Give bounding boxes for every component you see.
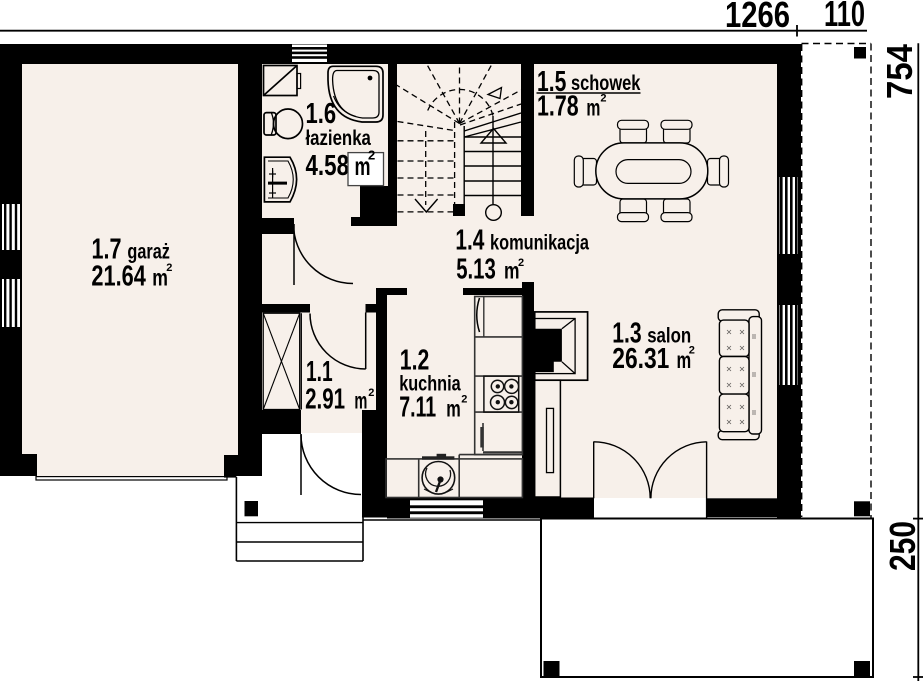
svg-text:łazienka: łazienka [306, 127, 372, 150]
svg-text:1266: 1266 [725, 0, 790, 35]
svg-text:m: m [586, 95, 600, 121]
svg-text:2: 2 [368, 387, 374, 399]
svg-text:1.4: 1.4 [455, 224, 484, 256]
svg-text:5.13: 5.13 [456, 253, 496, 285]
svg-text:kuchnia: kuchnia [399, 373, 461, 396]
svg-text:2: 2 [518, 257, 524, 269]
svg-text:110: 110 [824, 0, 865, 34]
svg-text:7.11: 7.11 [399, 392, 436, 424]
svg-text:250: 250 [882, 521, 923, 571]
svg-text:1.78: 1.78 [537, 91, 579, 123]
svg-text:m: m [446, 396, 461, 422]
svg-text:komunikacja: komunikacja [490, 231, 589, 254]
svg-text:2: 2 [461, 394, 467, 406]
svg-text:754: 754 [879, 44, 920, 99]
svg-text:2: 2 [368, 148, 375, 163]
svg-text:2: 2 [600, 93, 606, 105]
svg-text:garaż: garaż [127, 240, 169, 263]
svg-text:m: m [354, 387, 367, 413]
svg-text:26.31: 26.31 [612, 343, 669, 375]
svg-text:21.64: 21.64 [91, 261, 145, 293]
svg-text:1.6: 1.6 [306, 98, 337, 130]
svg-text:4.58: 4.58 [306, 150, 350, 182]
svg-text:2: 2 [689, 345, 695, 357]
svg-text:2.91: 2.91 [305, 383, 345, 415]
svg-text:salon: salon [647, 324, 691, 347]
svg-text:2: 2 [166, 262, 172, 274]
